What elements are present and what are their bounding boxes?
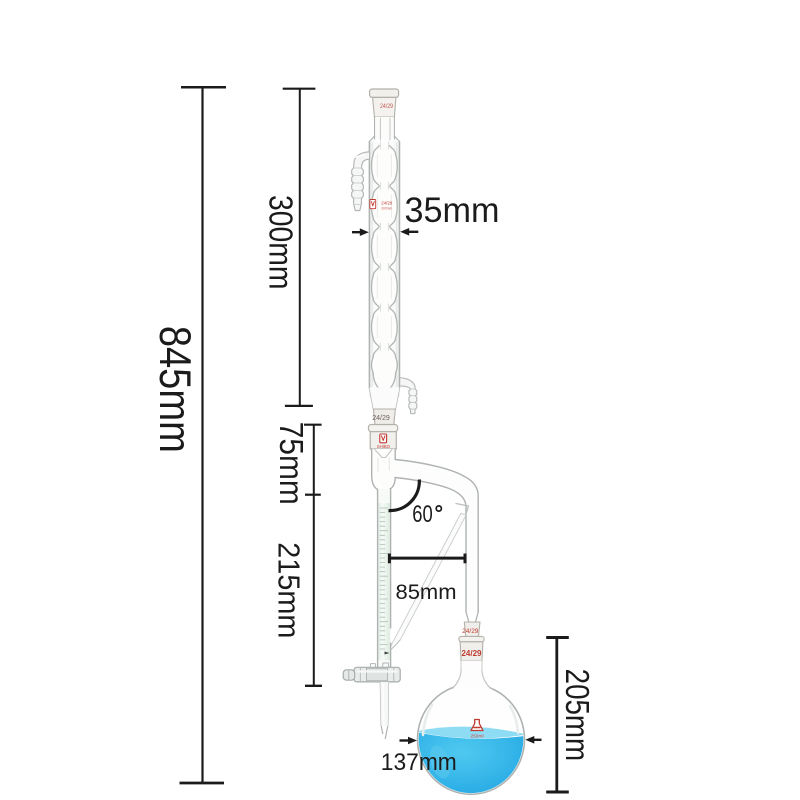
svg-text:137mm: 137mm [381, 750, 457, 776]
svg-text:SHIBO: SHIBO [377, 444, 391, 449]
svg-text:60: 60 [412, 501, 433, 528]
svg-text:215mm: 215mm [271, 542, 306, 638]
svg-text:300mm: 300mm [381, 206, 393, 211]
svg-text:35mm: 35mm [405, 190, 500, 230]
svg-text:845mm: 845mm [150, 326, 200, 453]
svg-text:85mm: 85mm [396, 581, 457, 604]
svg-text:24/29: 24/29 [461, 649, 482, 658]
svg-text:250ml: 250ml [470, 734, 483, 740]
svg-text:300mm: 300mm [261, 195, 298, 290]
svg-text:24/29: 24/29 [462, 628, 479, 635]
svg-text:24/29: 24/29 [372, 415, 390, 422]
svg-text:24/29: 24/29 [380, 104, 394, 110]
svg-text:75mm: 75mm [272, 422, 309, 505]
svg-text:205mm: 205mm [558, 669, 595, 762]
